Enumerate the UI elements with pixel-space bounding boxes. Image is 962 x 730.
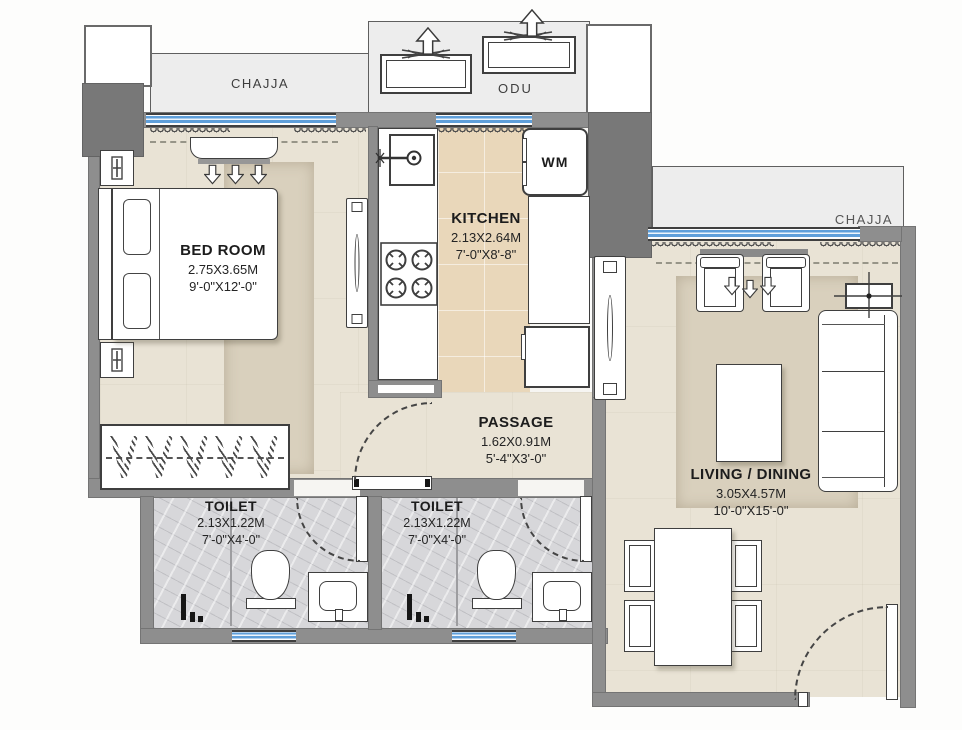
coffee-table bbox=[716, 364, 782, 462]
kitchen-door-opening bbox=[378, 385, 434, 393]
washbasin bbox=[532, 572, 592, 622]
kitchen-label: KITCHEN 2.13X2.64M 7'-0"X8'-8" bbox=[426, 209, 546, 263]
toilet-wc bbox=[477, 550, 516, 600]
odu-unit-1-inner bbox=[386, 60, 466, 88]
chair-seat bbox=[629, 605, 651, 647]
bedroom-dim-metric: 2.75X3.65M bbox=[143, 261, 303, 278]
wardrobe bbox=[100, 424, 290, 490]
armchair-back bbox=[766, 257, 806, 268]
chajja-right-band: CHAJJA bbox=[652, 166, 904, 230]
kitchen-right-column bbox=[588, 112, 652, 258]
toilet2-door-opening bbox=[518, 480, 584, 496]
kitchen-name: KITCHEN bbox=[426, 209, 546, 229]
chajja-left-label: CHAJJA bbox=[231, 76, 289, 91]
basin-bowl bbox=[319, 581, 357, 611]
side-table-icon bbox=[834, 272, 902, 318]
shower-mixer-icon bbox=[407, 594, 412, 620]
bedroom-sliding-door bbox=[346, 198, 368, 328]
lamp-icon bbox=[109, 347, 125, 373]
chajja-left-band: CHAJJA bbox=[150, 53, 370, 114]
door-cap bbox=[352, 202, 363, 212]
up-arrow-icon bbox=[414, 27, 442, 55]
door-cap bbox=[352, 314, 363, 324]
passage-dim-metric: 1.62X0.91M bbox=[451, 433, 581, 450]
bedroom-label: BED ROOM 2.75X3.65M 9'-0"X12'-0" bbox=[143, 241, 303, 295]
kitchen-window bbox=[436, 113, 532, 127]
down-arrow-icon bbox=[204, 162, 221, 187]
toilet-bottom-wall bbox=[140, 628, 608, 644]
living-window-wall-piece bbox=[858, 226, 902, 242]
curtain-scallop bbox=[294, 128, 366, 136]
down-arrow-icon bbox=[760, 274, 776, 298]
toilet2-label: TOILET 2.13X1.22M 7'-0"X4'-0" bbox=[372, 497, 502, 548]
lamp-icon bbox=[109, 155, 125, 181]
bed-headboard bbox=[98, 188, 112, 340]
kitchen-dim-imperial: 7'-0"X8'-8" bbox=[426, 246, 546, 263]
toilet1-window bbox=[232, 630, 296, 642]
passage-dim-imperial: 5'-4"X3'-0" bbox=[451, 450, 581, 467]
toilet2-name: TOILET bbox=[372, 497, 502, 515]
sofa-armrest-line bbox=[822, 477, 885, 478]
door-stop bbox=[354, 479, 359, 487]
down-arrow-icon bbox=[227, 162, 244, 187]
floor-plan: CHAJJA ODU CHAJJA bbox=[0, 0, 962, 730]
duct-box-top-right bbox=[586, 24, 652, 114]
refrigerator bbox=[524, 326, 590, 388]
passage-label: PASSAGE 1.62X0.91M 5'-4"X3'-0" bbox=[451, 413, 581, 467]
living-left-wall bbox=[592, 396, 606, 698]
sofa-back-line bbox=[884, 315, 885, 487]
curtain-scallop bbox=[438, 128, 532, 136]
dining-table bbox=[654, 528, 732, 666]
sofa-armrest-line bbox=[822, 324, 885, 325]
toilet1-dim-metric: 2.13X1.22M bbox=[166, 515, 296, 532]
shower-mixer-icon bbox=[424, 616, 429, 622]
living-right-wall bbox=[900, 226, 916, 708]
toilet1-label: TOILET 2.13X1.22M 7'-0"X4'-0" bbox=[166, 497, 296, 548]
shower-mixer-icon bbox=[181, 594, 186, 620]
bedroom-ac-unit bbox=[190, 137, 278, 159]
toilet2-dim-metric: 2.13X1.22M bbox=[372, 515, 502, 532]
chair-seat bbox=[735, 545, 757, 587]
sink-icon bbox=[374, 132, 436, 188]
dining-chair bbox=[624, 600, 656, 652]
door-cap bbox=[603, 383, 617, 395]
toilet-left-wall bbox=[140, 496, 154, 644]
dining-chair bbox=[730, 600, 762, 652]
curtain-scallop bbox=[820, 242, 900, 250]
odu-label: ODU bbox=[498, 81, 533, 96]
down-arrow-icon bbox=[742, 277, 758, 301]
dining-chair bbox=[730, 540, 762, 592]
curtain-scallop bbox=[150, 128, 230, 136]
sofa-cushion-line bbox=[822, 371, 885, 372]
door-stop bbox=[425, 479, 430, 487]
living-window bbox=[648, 227, 860, 241]
passage-name: PASSAGE bbox=[451, 413, 581, 433]
basin-tap bbox=[335, 609, 343, 621]
toilet1-dim-imperial: 7'-0"X4'-0" bbox=[166, 532, 296, 549]
toilet1-door-opening bbox=[294, 480, 360, 496]
wm-door-hinge bbox=[522, 138, 527, 162]
living-sliding-door bbox=[594, 256, 626, 400]
bedroom-dim-imperial: 9'-0"X12'-0" bbox=[143, 278, 303, 295]
column-top-left bbox=[82, 83, 144, 157]
shower-mixer-icon bbox=[198, 616, 203, 622]
toilet2-window bbox=[452, 630, 516, 642]
wm-door-hinge bbox=[522, 162, 527, 186]
fridge-hinge bbox=[521, 334, 526, 360]
dining-chair bbox=[624, 540, 656, 592]
door-cap bbox=[603, 261, 617, 273]
toilet1-name: TOILET bbox=[166, 497, 296, 515]
bedroom-window bbox=[146, 113, 336, 127]
sofa-cushion-line bbox=[822, 431, 885, 432]
shower-mixer-icon bbox=[190, 612, 195, 622]
washbasin bbox=[308, 572, 368, 622]
chair-seat bbox=[629, 545, 651, 587]
living-dim-imperial: 10'-0"X15'-0" bbox=[671, 502, 831, 519]
living-bottom-wall bbox=[592, 692, 810, 707]
living-label: LIVING / DINING 3.05X4.57M 10'-0"X15'-0" bbox=[671, 465, 831, 519]
odu-unit-2-inner bbox=[488, 42, 570, 68]
shower-mixer-icon bbox=[416, 612, 421, 622]
living-dim-metric: 3.05X4.57M bbox=[671, 485, 831, 502]
toilet2-dim-imperial: 7'-0"X4'-0" bbox=[372, 532, 502, 549]
kitchen-dim-metric: 2.13X2.64M bbox=[426, 229, 546, 246]
chair-seat bbox=[735, 605, 757, 647]
down-arrow-icon bbox=[724, 274, 740, 298]
toilet-wc bbox=[251, 550, 290, 600]
odu-unit-1 bbox=[380, 54, 472, 94]
down-arrow-icon bbox=[250, 162, 267, 187]
bedroom-name: BED ROOM bbox=[143, 241, 303, 261]
basin-tap bbox=[559, 609, 567, 621]
up-arrow-icon bbox=[518, 9, 546, 37]
washing-machine: WM bbox=[522, 128, 588, 196]
duct-box-top-left bbox=[84, 25, 152, 87]
armchair-back bbox=[700, 257, 740, 268]
basin-bowl bbox=[543, 581, 581, 611]
living-name: LIVING / DINING bbox=[671, 465, 831, 485]
door-handle bbox=[607, 295, 613, 361]
door-handle bbox=[355, 234, 360, 292]
washing-machine-label: WM bbox=[542, 154, 569, 170]
